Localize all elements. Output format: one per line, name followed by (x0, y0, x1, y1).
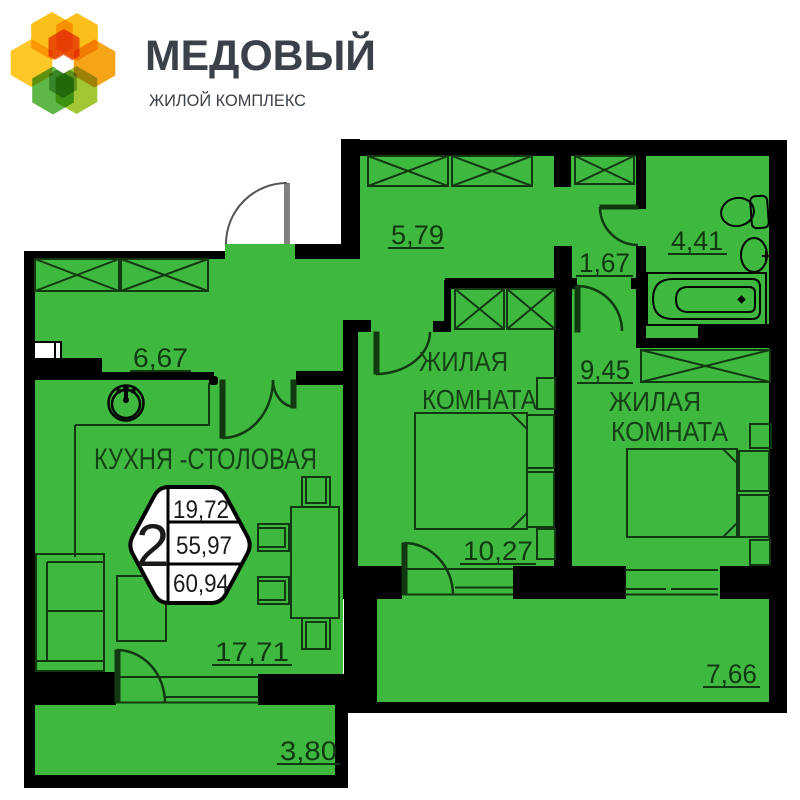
svg-text:ЖИЛОЙ КОМПЛЕКС: ЖИЛОЙ КОМПЛЕКС (149, 91, 306, 110)
svg-text:1,67: 1,67 (579, 248, 630, 278)
svg-text:ЖИЛАЯ: ЖИЛАЯ (609, 386, 701, 417)
svg-text:19,72: 19,72 (173, 496, 229, 524)
svg-text:КОМНАТА: КОМНАТА (422, 384, 537, 415)
svg-text:10,27: 10,27 (463, 536, 533, 566)
svg-text:МЕДОВЫЙ: МЕДОВЫЙ (145, 31, 376, 80)
svg-text:9,45: 9,45 (580, 355, 630, 385)
svg-text:6,67: 6,67 (133, 343, 188, 373)
svg-text:4,41: 4,41 (671, 226, 723, 256)
svg-text:ЖИЛАЯ: ЖИЛАЯ (419, 346, 508, 377)
svg-text:3,80: 3,80 (280, 736, 337, 766)
svg-text:КОМНАТА: КОМНАТА (611, 416, 728, 447)
svg-text:17,71: 17,71 (215, 637, 289, 667)
svg-text:2: 2 (136, 512, 169, 579)
svg-text:5,79: 5,79 (391, 220, 444, 250)
svg-text:7,66: 7,66 (706, 659, 757, 689)
svg-text:55,97: 55,97 (176, 532, 232, 560)
svg-text:КУХНЯ -СТОЛОВАЯ: КУХНЯ -СТОЛОВАЯ (94, 443, 317, 476)
svg-text:60,94: 60,94 (173, 570, 229, 598)
